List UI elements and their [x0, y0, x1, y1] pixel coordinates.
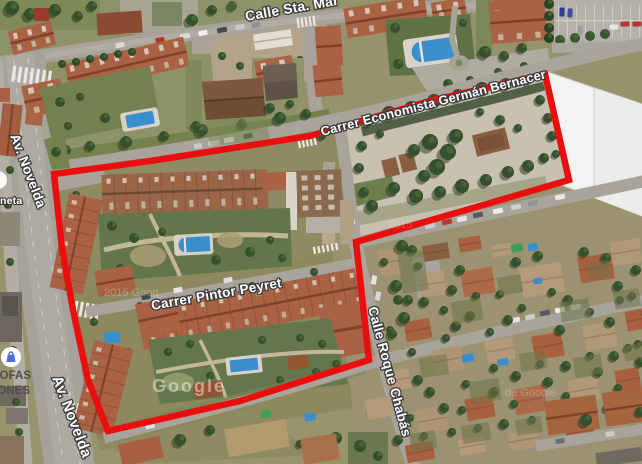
svg-text:HONES: HONES — [0, 385, 30, 397]
svg-text:neta: neta — [0, 195, 22, 207]
svg-text:2015: 2015 — [388, 219, 412, 231]
svg-text:de Google: de Google — [505, 387, 556, 399]
svg-text:SOFAS: SOFAS — [0, 370, 31, 382]
svg-text:Google: Google — [152, 376, 226, 396]
